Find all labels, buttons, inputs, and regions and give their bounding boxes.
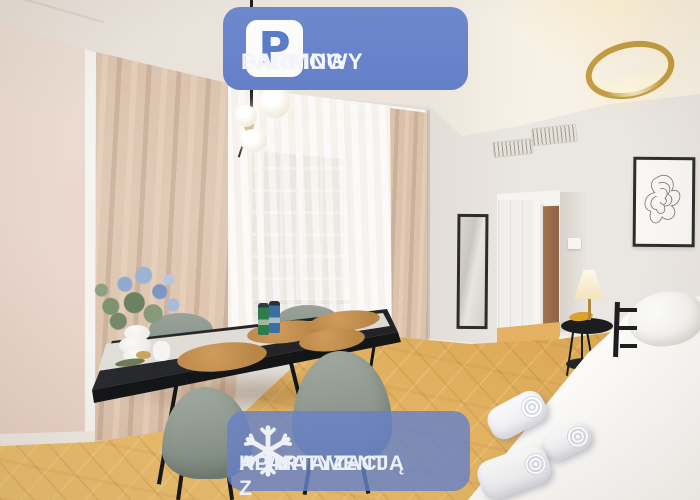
apartment-photo: P DARMOWY PARKING (0, 0, 700, 500)
parking-badge-line2: PARKING (241, 49, 344, 75)
ac-badge-line2: KLIMATYZACJĄ (239, 451, 404, 476)
air-conditioning-badge: APARTAMENT Z KLIMATYZACJĄ (227, 411, 470, 491)
free-parking-badge: P DARMOWY PARKING (223, 7, 468, 90)
